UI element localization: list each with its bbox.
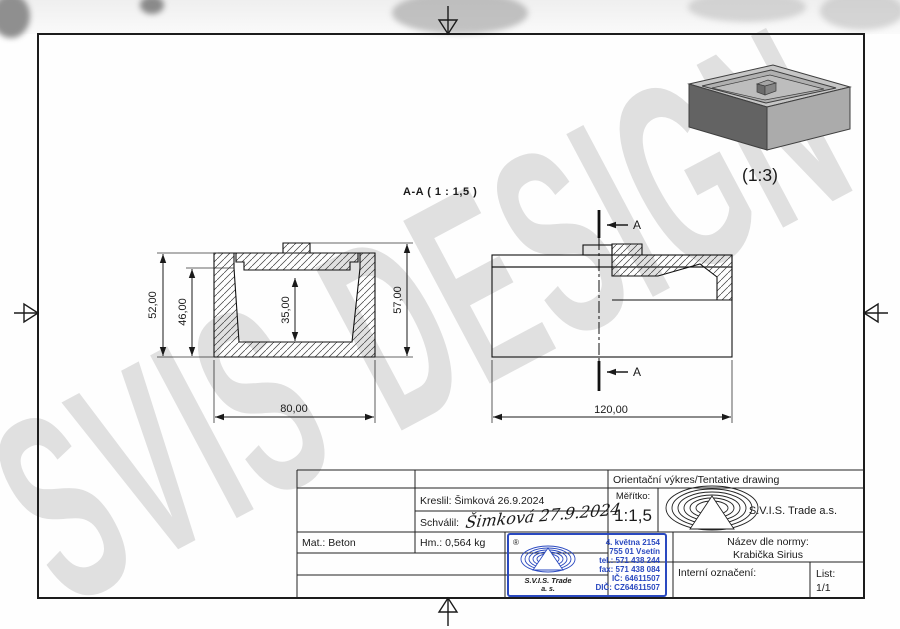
stamp-company-line2: a. s. (541, 586, 555, 593)
stamp-vat-id: DIČ: CZ64611507 (596, 583, 661, 592)
sheet-label: List: (816, 568, 835, 580)
scanned-drawing-page: SVIS DESIGN (0, 0, 900, 629)
internal-id-label: Interní označení: (678, 567, 756, 579)
dim-80: 80,00 (280, 403, 308, 415)
tentative-drawing-label: Orientační výkres/Tentative drawing (613, 474, 779, 486)
stamp-address2: 755 01 Vsetín (609, 547, 660, 556)
company-name: S.V.I.S. Trade a.s. (749, 505, 837, 517)
company-stamp: ® S.V.I.S. Trade a. s. 4. května 2154 75… (508, 534, 666, 596)
iso-scale-label: (1:3) (742, 165, 778, 185)
drawing-sheet-linework: 52,00 46,00 35,00 57,00 80,00 A-A ( 1 : … (0, 0, 900, 629)
cut-label-bottom: A (633, 365, 641, 379)
norm-name-value: Krabička Sirius (733, 549, 803, 561)
stamp-phone: tel.: 571 438 244 (599, 556, 660, 565)
stamp-fax: fax: 571 438 084 (599, 565, 660, 574)
stamp-address1: 4. května 2154 (606, 538, 661, 547)
stamp-company-line1: S.V.I.S. Trade (524, 576, 571, 585)
dim-52: 52,00 (147, 291, 159, 319)
dim-46: 46,00 (177, 298, 189, 326)
center-mark-top (439, 6, 457, 34)
side-view (492, 244, 732, 357)
company-logo (666, 486, 758, 530)
stamp-company-id: IČ: 64611507 (612, 574, 661, 583)
weight: Hm.: 0,564 kg (420, 537, 486, 549)
approved-label: Schválil: (420, 517, 459, 529)
stamp-logo (521, 546, 575, 572)
dim-35: 35,00 (280, 296, 292, 324)
center-mark-bottom (439, 598, 457, 626)
center-mark-right (864, 304, 888, 322)
cut-label-top: A (633, 218, 641, 232)
center-mark-left (14, 304, 38, 322)
sheet-number: 1/1 (816, 582, 831, 594)
drawn-by: Kreslil: Šimková 26.9.2024 (420, 494, 544, 507)
dim-57: 57,00 (392, 286, 404, 314)
material: Mat.: Beton (302, 537, 356, 549)
iso-view (689, 65, 850, 150)
norm-name-label: Název dle normy: (727, 536, 809, 548)
section-label: A-A ( 1 : 1,5 ) (403, 186, 477, 198)
registered-mark: ® (513, 538, 519, 547)
dim-120: 120,00 (594, 404, 628, 416)
